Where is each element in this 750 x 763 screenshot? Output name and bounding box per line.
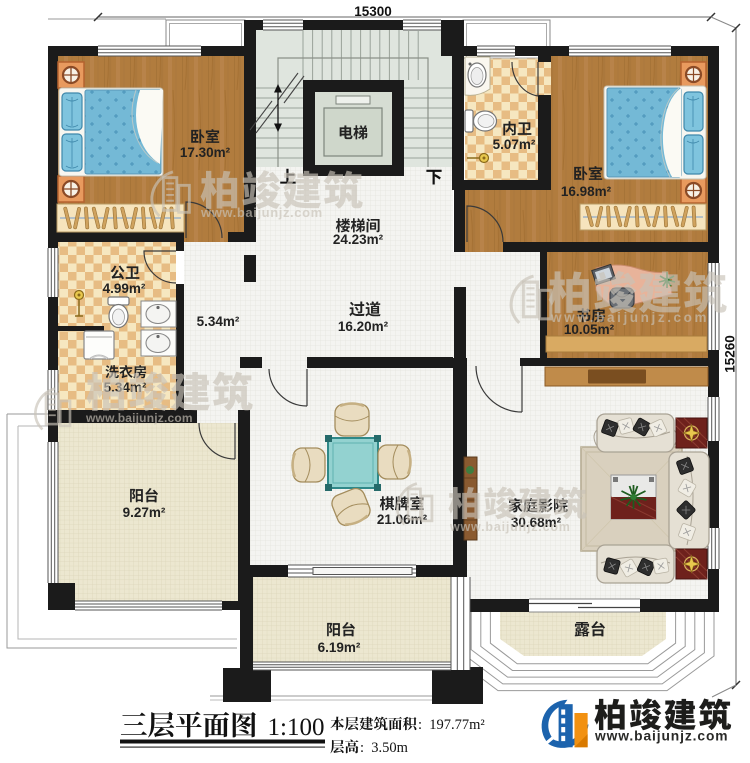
svg-text:: 3.50m: : 3.50m: [360, 740, 409, 756]
svg-text:5.34m²: 5.34m²: [197, 314, 240, 329]
svg-text:17.30m²: 17.30m²: [180, 145, 231, 160]
svg-text:www.baijunjz.com: www.baijunjz.com: [200, 205, 323, 220]
svg-text:www.baijunjz.com: www.baijunjz.com: [85, 411, 193, 425]
svg-text:15260: 15260: [723, 335, 738, 373]
svg-text:16.20m²: 16.20m²: [338, 319, 389, 334]
svg-text:6.19m²: 6.19m²: [318, 640, 361, 655]
svg-text:16.98m²: 16.98m²: [561, 184, 612, 199]
svg-text:1:100: 1:100: [268, 714, 325, 741]
svg-text:: 197.77m²: : 197.77m²: [418, 717, 485, 733]
svg-text:4.99m²: 4.99m²: [103, 281, 146, 296]
svg-text:www.baijunjz.com: www.baijunjz.com: [594, 729, 728, 744]
svg-text:5.07m²: 5.07m²: [493, 137, 536, 152]
svg-text:24.23m²: 24.23m²: [333, 232, 384, 247]
svg-text:www.baijunjz.com: www.baijunjz.com: [449, 520, 571, 534]
svg-text:15300: 15300: [354, 4, 392, 19]
svg-text:www.baijunjz.com: www.baijunjz.com: [550, 310, 709, 325]
svg-text:9.27m²: 9.27m²: [123, 505, 166, 520]
